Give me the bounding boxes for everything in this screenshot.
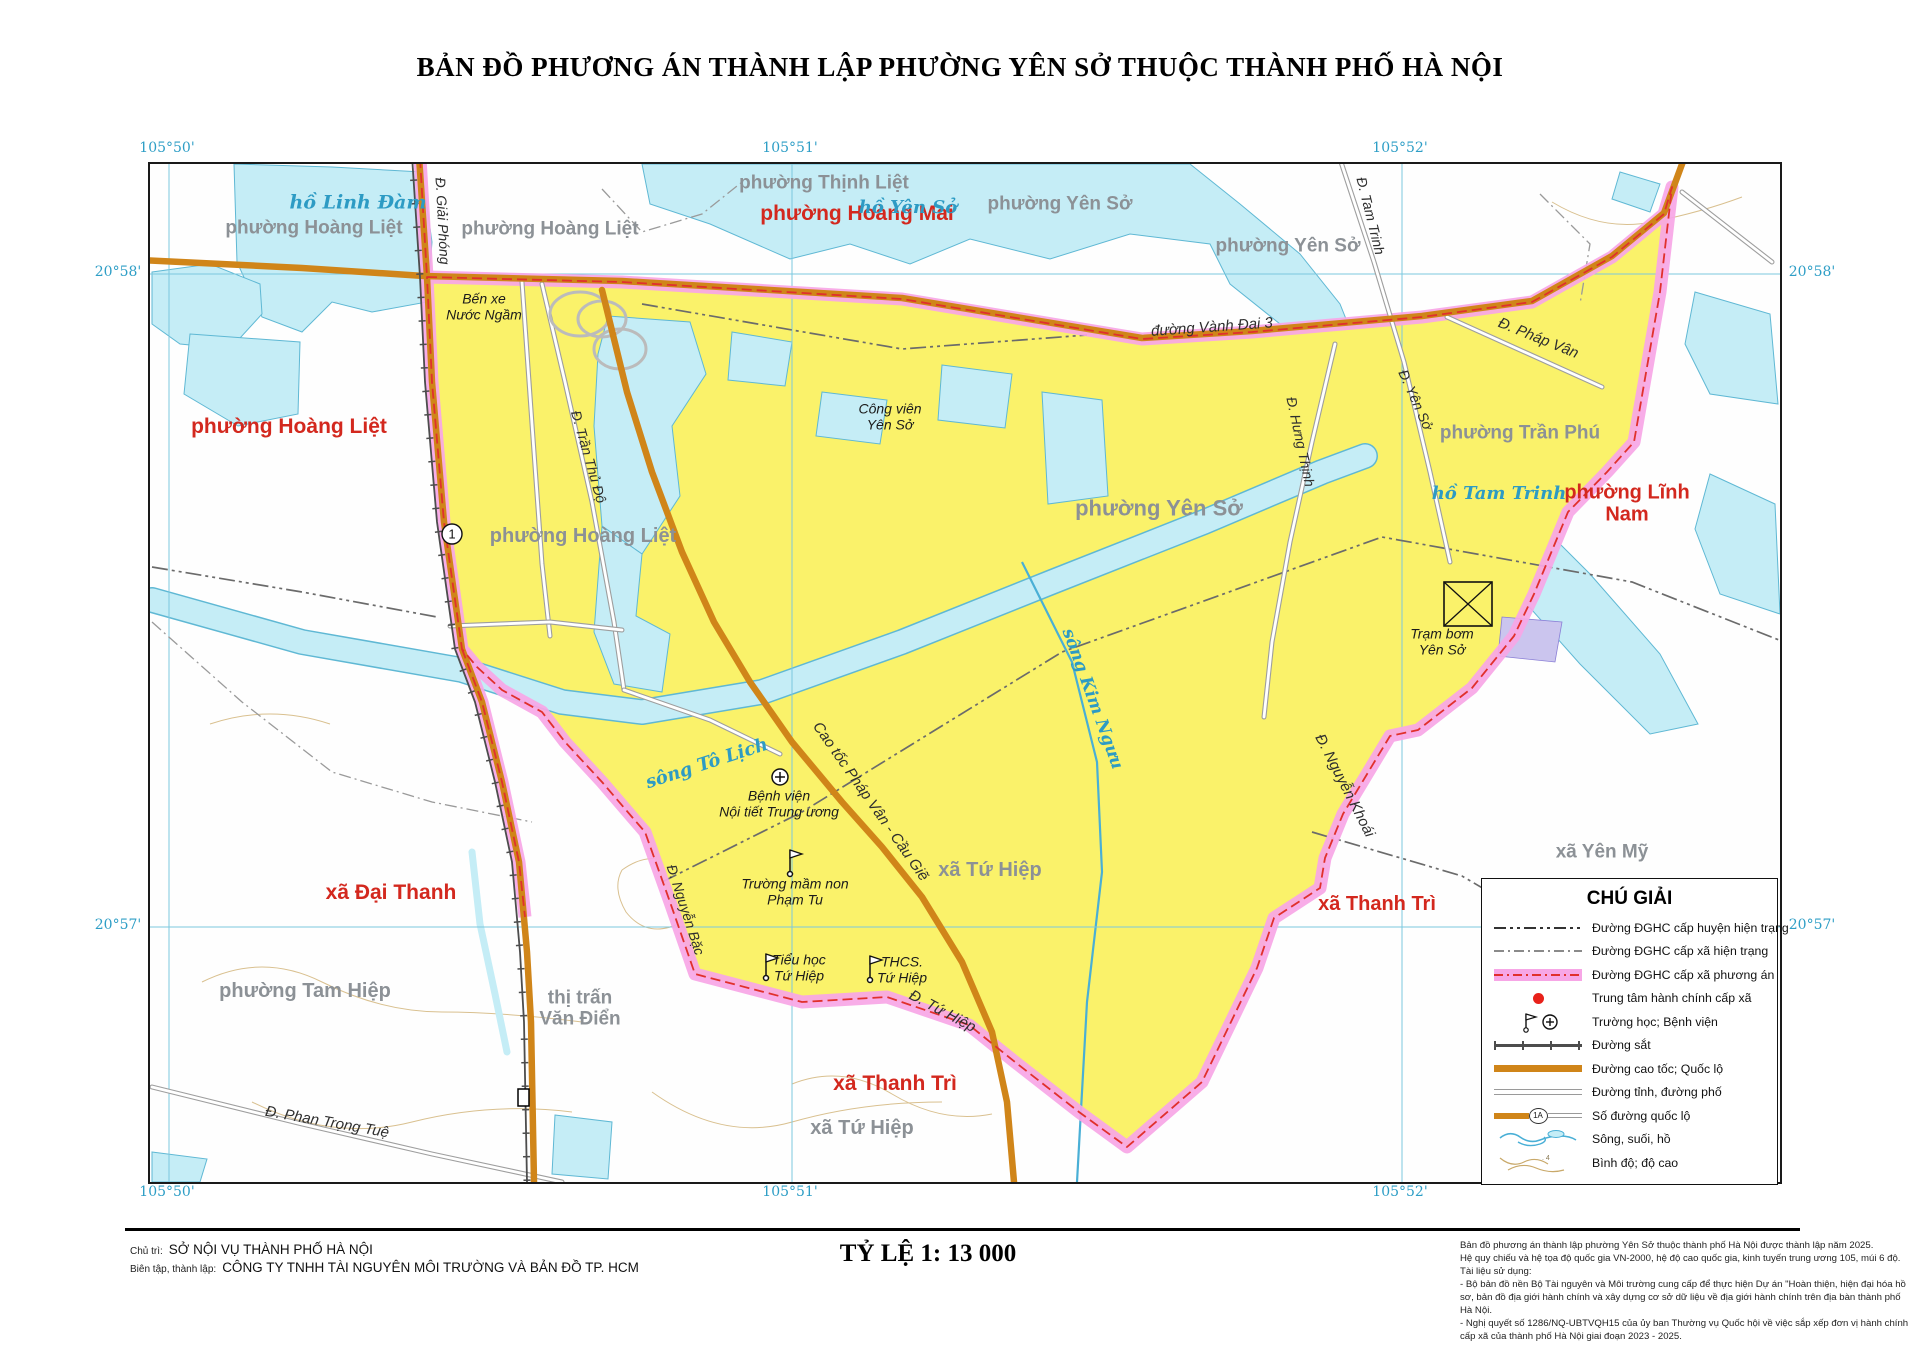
graticule-label: 105°51'	[762, 140, 817, 156]
school-hospital-symbol	[1494, 1011, 1582, 1033]
hospital-icon	[772, 769, 788, 785]
contour-symbol: . 4	[1494, 1152, 1582, 1174]
graticule-label: 20°57'	[1789, 917, 1835, 933]
boundary-district-symbol	[1494, 927, 1582, 929]
credit-line: Biên tập, thành lập: CÔNG TY TNHH TÀI NG…	[130, 1260, 639, 1275]
expressway-symbol	[1494, 1065, 1582, 1072]
map-notes: Bản đồ phương án thành lập phường Yên Sở…	[1460, 1240, 1912, 1344]
railway-symbol	[1494, 1044, 1582, 1047]
legend-row: Đường ĐGHC cấp huyện hiện trạng	[1482, 916, 1777, 940]
legend-row: . 4 Bình độ; độ cao	[1482, 1151, 1777, 1175]
footer-divider	[125, 1228, 1800, 1231]
route-number-symbol: 1A	[1494, 1108, 1582, 1124]
map-scale: TỶ LỆ 1: 13 000	[840, 1240, 1016, 1268]
railway-station	[518, 1089, 529, 1106]
legend-item-label: Bình độ; độ cao	[1592, 1156, 1678, 1170]
street-symbol	[1494, 1089, 1582, 1095]
credit-line: Chủ trì: SỞ NỘI VỤ THÀNH PHỐ HÀ NỘI	[130, 1242, 639, 1257]
legend-row: Đường tỉnh, đường phố	[1482, 1081, 1777, 1105]
graticule-label: 20°57'	[95, 917, 141, 933]
credits-block: Chủ trì: SỞ NỘI VỤ THÀNH PHỐ HÀ NỘI Biên…	[130, 1242, 639, 1278]
note-line: Hệ quy chiếu và hệ tọa độ quốc gia VN-20…	[1460, 1253, 1912, 1266]
note-line: Bản đồ phương án thành lập phường Yên Sở…	[1460, 1240, 1912, 1253]
graticule-label: 105°51'	[762, 1184, 817, 1200]
graticule-label: 105°50'	[139, 1184, 194, 1200]
legend-item-label: Đường cao tốc; Quốc lộ	[1592, 1062, 1723, 1076]
credit-value: CÔNG TY TNHH TÀI NGUYÊN MÔI TRƯỜNG VÀ BẢ…	[222, 1260, 639, 1275]
legend-row: Đường sắt	[1482, 1034, 1777, 1058]
legend-item-label: Trung tâm hành chính cấp xã	[1592, 991, 1752, 1005]
legend-row: 1A Số đường quốc lộ	[1482, 1104, 1777, 1128]
legend-item-label: Trường học; Bệnh viện	[1592, 1015, 1718, 1029]
legend-item-label: Số đường quốc lộ	[1592, 1109, 1690, 1123]
graticule-label: 105°50'	[139, 140, 194, 156]
graticule-label: 105°52'	[1372, 140, 1427, 156]
graticule-label: 20°58'	[1789, 264, 1835, 280]
route-number-badge: 1A	[1529, 1108, 1548, 1124]
legend-item-label: Sông, suối, hồ	[1592, 1132, 1671, 1146]
legend-item-label: Đường ĐGHC cấp xã hiện trạng	[1592, 944, 1768, 958]
legend-title: CHÚ GIẢI	[1482, 888, 1777, 910]
admin-center-symbol	[1494, 993, 1582, 1004]
route-1-badge: 1	[442, 524, 462, 544]
legend-row: Trường học; Bệnh viện	[1482, 1010, 1777, 1034]
svg-text:1: 1	[448, 527, 455, 542]
credit-label: Chủ trì:	[130, 1246, 163, 1257]
legend-box: CHÚ GIẢI Đường ĐGHC cấp huyện hiện trạng…	[1481, 878, 1778, 1185]
legend-item-label: Đường tỉnh, đường phố	[1592, 1085, 1722, 1099]
note-line: - Nghị quyết số 1286/NQ-UBTVQH15 của ủy …	[1460, 1318, 1912, 1344]
graticule-label: 105°52'	[1372, 1184, 1427, 1200]
legend-item-label: Đường sắt	[1592, 1038, 1651, 1052]
note-line: - Bộ bản đồ nền Bộ Tài nguyên và Môi trư…	[1460, 1279, 1912, 1318]
graticule-label: 20°58'	[95, 264, 141, 280]
svg-text:. 4: . 4	[1542, 1155, 1550, 1162]
credit-value: SỞ NỘI VỤ THÀNH PHỐ HÀ NỘI	[169, 1242, 373, 1257]
legend-item-label: Đường ĐGHC cấp huyện hiện trạng	[1592, 921, 1789, 935]
legend-row: Trung tâm hành chính cấp xã	[1482, 987, 1777, 1011]
legend-item-label: Đường ĐGHC cấp xã phương án	[1592, 968, 1774, 982]
boundary-proposed-symbol	[1494, 969, 1582, 981]
legend-row: Đường cao tốc; Quốc lộ	[1482, 1057, 1777, 1081]
map-sheet: BẢN ĐỒ PHƯƠNG ÁN THÀNH LẬP PHƯỜNG YÊN SỞ…	[0, 0, 1920, 1357]
legend-row: Sông, suối, hồ	[1482, 1128, 1777, 1152]
river-symbol	[1494, 1128, 1582, 1150]
page-title: BẢN ĐỒ PHƯƠNG ÁN THÀNH LẬP PHƯỜNG YÊN SỞ…	[0, 52, 1920, 83]
credit-label: Biên tập, thành lập:	[130, 1264, 216, 1275]
boundary-commune-symbol	[1494, 950, 1582, 952]
note-line: Tài liệu sử dụng:	[1460, 1266, 1912, 1279]
legend-row: Đường ĐGHC cấp xã phương án	[1482, 963, 1777, 987]
legend-row: Đường ĐGHC cấp xã hiện trạng	[1482, 940, 1777, 964]
